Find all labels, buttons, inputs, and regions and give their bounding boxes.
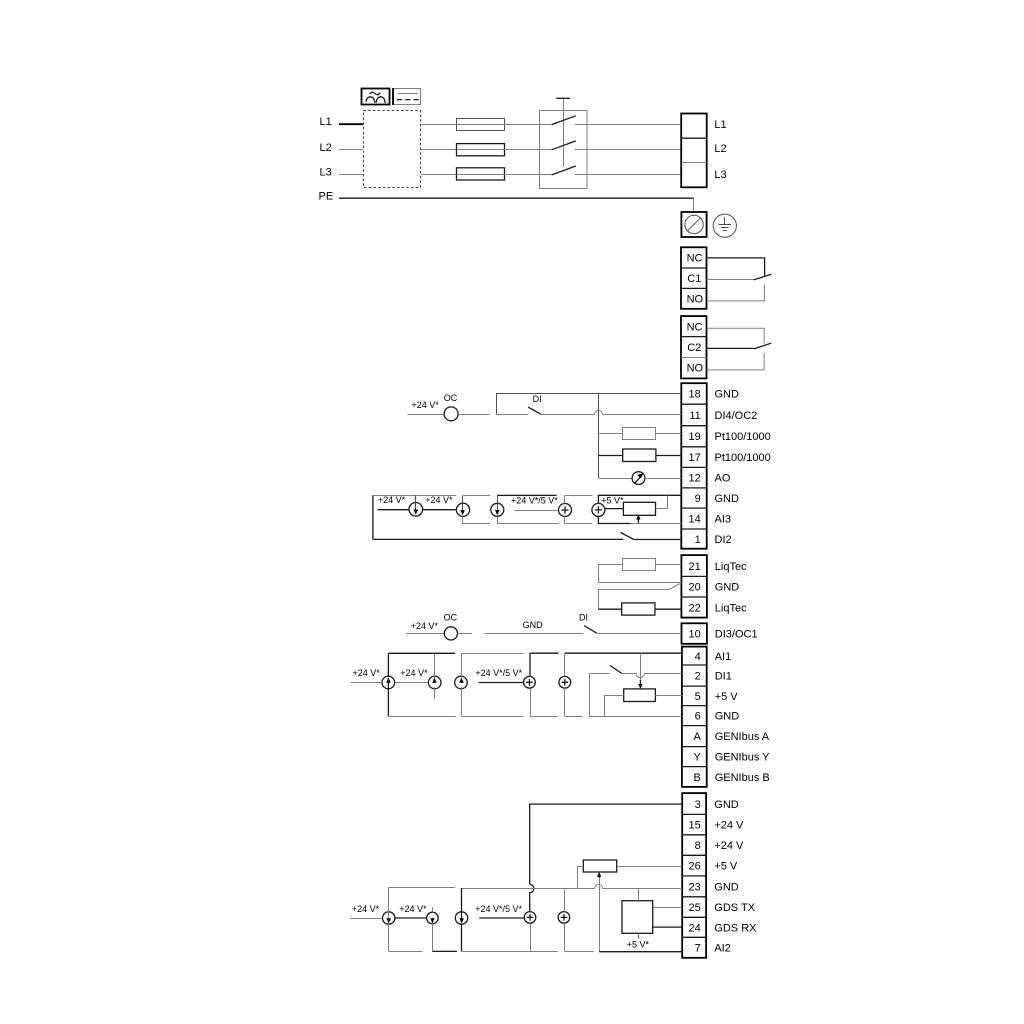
svg-text:7: 7 — [695, 943, 701, 955]
svg-text:+24 V*/5 V*: +24 V*/5 V* — [475, 668, 522, 678]
svg-text:+24 V*/5 V*: +24 V*/5 V* — [511, 496, 558, 506]
svg-text:A: A — [693, 731, 701, 743]
svg-text:NC: NC — [687, 253, 703, 265]
svg-text:+5 V*: +5 V* — [601, 496, 624, 506]
svg-text:+24 V*: +24 V* — [425, 495, 453, 505]
svg-text:C1: C1 — [687, 273, 701, 285]
svg-text:3: 3 — [695, 799, 701, 811]
svg-text:NO: NO — [687, 362, 704, 374]
svg-text:+5 V*: +5 V* — [627, 939, 650, 949]
svg-text:C2: C2 — [687, 342, 701, 354]
svg-text:OC: OC — [444, 393, 458, 403]
svg-text:B: B — [693, 772, 700, 784]
svg-text:8: 8 — [695, 840, 701, 852]
svg-text:L1: L1 — [320, 116, 332, 128]
svg-text:GND: GND — [715, 711, 740, 723]
svg-text:5: 5 — [695, 691, 701, 703]
svg-text:23: 23 — [689, 881, 701, 893]
svg-text:15: 15 — [689, 820, 701, 832]
svg-text:DI3/OC1: DI3/OC1 — [715, 628, 758, 640]
svg-text:NO: NO — [687, 294, 704, 306]
svg-text:+24 V: +24 V — [714, 820, 744, 832]
svg-text:11: 11 — [689, 410, 700, 422]
svg-text:DI2: DI2 — [715, 534, 732, 546]
svg-text:GDS TX: GDS TX — [714, 902, 755, 914]
svg-text:DI: DI — [533, 394, 542, 404]
svg-text:GND: GND — [714, 881, 739, 893]
svg-text:17: 17 — [689, 452, 701, 464]
svg-text:AI2: AI2 — [714, 943, 731, 955]
svg-text:18: 18 — [689, 389, 701, 401]
svg-text:LiqTec: LiqTec — [715, 561, 747, 573]
svg-text:24: 24 — [689, 922, 701, 934]
svg-text:19: 19 — [689, 431, 701, 443]
svg-text:AI1: AI1 — [715, 651, 732, 663]
svg-text:AI3: AI3 — [715, 514, 732, 526]
svg-text:L1: L1 — [714, 119, 726, 131]
svg-text:10: 10 — [689, 628, 701, 640]
svg-text:GENIbus B: GENIbus B — [715, 772, 770, 784]
svg-text:+24 V*: +24 V* — [411, 621, 439, 631]
svg-text:GND: GND — [523, 620, 544, 630]
svg-text:+24 V*: +24 V* — [400, 668, 428, 678]
svg-text:LiqTec: LiqTec — [715, 602, 747, 614]
svg-text:9: 9 — [695, 493, 701, 505]
svg-text:Pt100/1000: Pt100/1000 — [715, 452, 771, 464]
svg-text:+24 V*: +24 V* — [399, 904, 427, 914]
svg-text:+24 V*: +24 V* — [378, 495, 406, 505]
svg-text:L3: L3 — [320, 166, 332, 178]
svg-text:+24 V*/5 V*: +24 V*/5 V* — [475, 904, 522, 914]
svg-text:GENIbus Y: GENIbus Y — [715, 752, 770, 764]
svg-text:+5 V: +5 V — [715, 691, 739, 703]
svg-text:GND: GND — [715, 389, 740, 401]
svg-text:PE: PE — [319, 191, 334, 203]
svg-text:GDS RX: GDS RX — [714, 922, 757, 934]
svg-text:AO: AO — [715, 473, 731, 485]
svg-text:21: 21 — [689, 561, 701, 573]
svg-text:DI: DI — [579, 613, 588, 623]
svg-text:25: 25 — [689, 902, 701, 914]
svg-text:L2: L2 — [714, 143, 726, 155]
svg-text:4: 4 — [695, 651, 701, 663]
svg-text:20: 20 — [689, 582, 701, 594]
svg-text:2: 2 — [695, 671, 701, 683]
svg-text:L3: L3 — [714, 169, 726, 181]
svg-text:GND: GND — [715, 493, 740, 505]
svg-text:L2: L2 — [320, 142, 332, 154]
svg-text:OC: OC — [444, 612, 458, 622]
svg-text:NC: NC — [687, 321, 703, 333]
svg-text:6: 6 — [695, 711, 701, 723]
svg-text:26: 26 — [689, 861, 701, 873]
svg-text:+24 V: +24 V — [714, 840, 744, 852]
svg-text:GND: GND — [714, 799, 739, 811]
svg-text:22: 22 — [689, 602, 701, 614]
svg-text:Pt100/1000: Pt100/1000 — [715, 431, 771, 443]
svg-text:+24 V*: +24 V* — [352, 904, 380, 914]
svg-text:DI1: DI1 — [715, 671, 732, 683]
svg-text:DI4/OC2: DI4/OC2 — [715, 410, 758, 422]
svg-text:12: 12 — [689, 473, 701, 485]
svg-text:+24 V*: +24 V* — [412, 400, 440, 410]
svg-text:14: 14 — [689, 514, 701, 526]
svg-text:GND: GND — [715, 582, 740, 594]
svg-text:GENIbus A: GENIbus A — [715, 731, 770, 743]
svg-text:Y: Y — [693, 752, 701, 764]
svg-text:+24 V*: +24 V* — [353, 668, 381, 678]
svg-text:+5 V: +5 V — [714, 861, 738, 873]
svg-text:1: 1 — [695, 534, 701, 546]
